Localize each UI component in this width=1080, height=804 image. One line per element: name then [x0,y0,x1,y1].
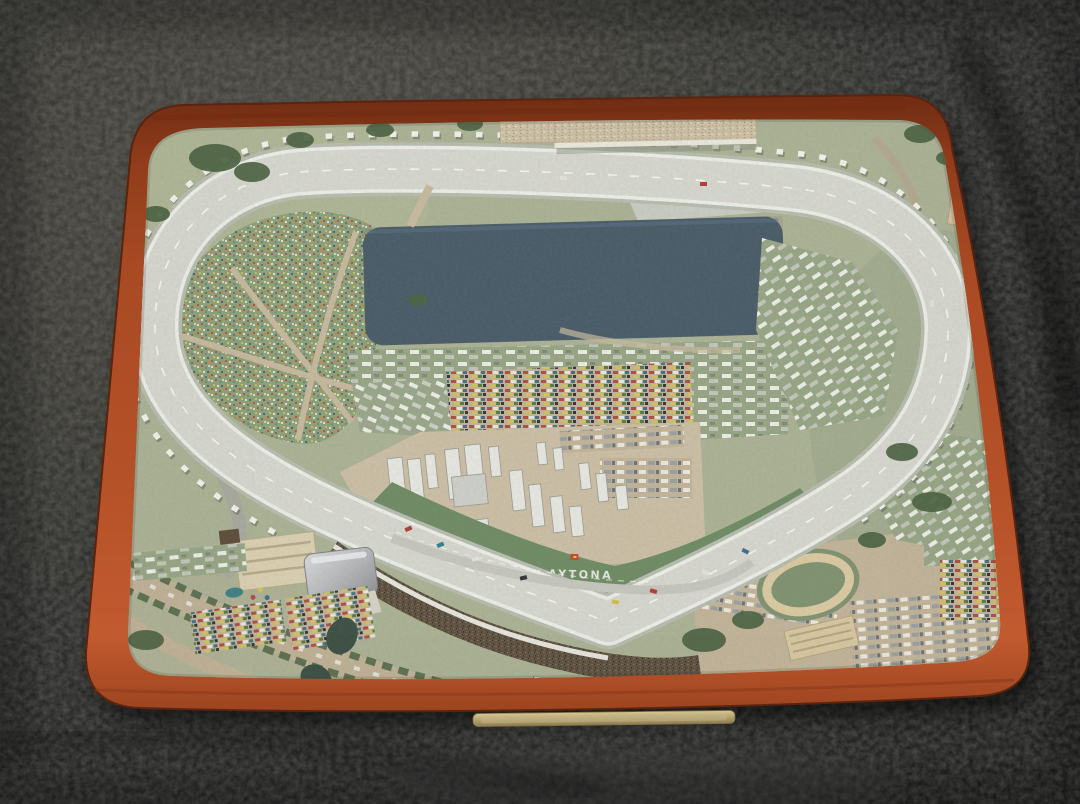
speedway-model: DAYTONA [60,80,1070,730]
photo-of-daytona-speedway-model: DAYTONA [0,0,1080,804]
terrain-texture-light [80,80,1040,730]
scene-canvas: DAYTONA [0,0,1080,804]
